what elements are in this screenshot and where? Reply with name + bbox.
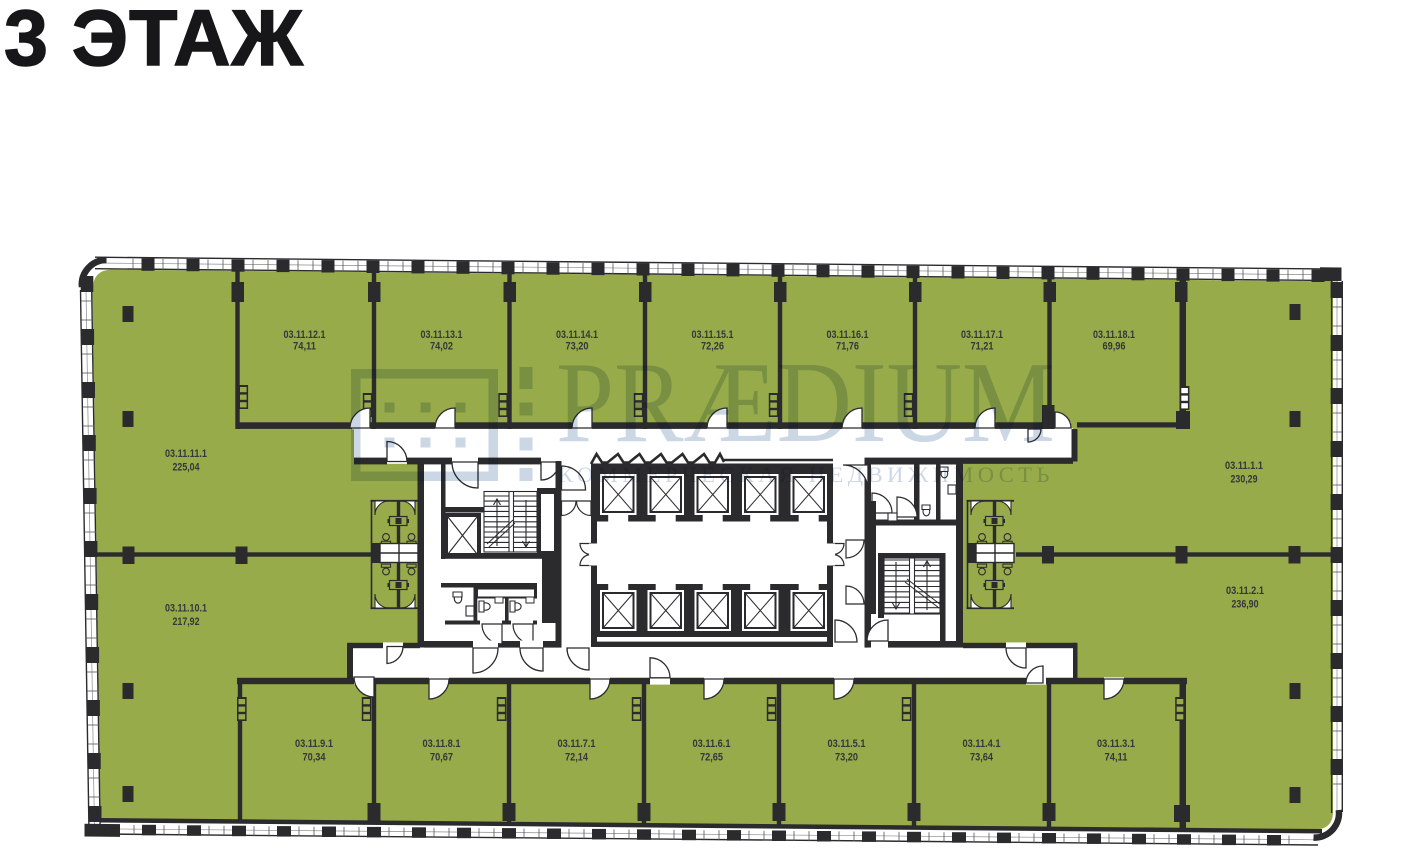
svg-text:236,90: 236,90 xyxy=(1232,599,1259,611)
svg-text:PRÆDIUM: PRÆDIUM xyxy=(556,338,1055,466)
svg-text:03.11.7.1: 03.11.7.1 xyxy=(558,738,596,750)
svg-text:74,11: 74,11 xyxy=(293,341,316,353)
svg-text:70,34: 70,34 xyxy=(303,752,326,764)
svg-text:72,14: 72,14 xyxy=(565,752,588,764)
svg-text:3 ЭТАЖ: 3 ЭТАЖ xyxy=(4,0,304,82)
svg-text:73,20: 73,20 xyxy=(835,752,858,764)
svg-text:03.11.10.1: 03.11.10.1 xyxy=(165,603,207,615)
svg-text:03.11.6.1: 03.11.6.1 xyxy=(693,738,731,750)
svg-text:03.11.4.1: 03.11.4.1 xyxy=(963,738,1001,750)
svg-text:230,29: 230,29 xyxy=(1231,474,1258,486)
svg-text:70,67: 70,67 xyxy=(430,752,453,764)
svg-text:74,02: 74,02 xyxy=(430,341,453,353)
svg-text:03.11.2.1: 03.11.2.1 xyxy=(1226,585,1264,597)
svg-text:03.11.13.1: 03.11.13.1 xyxy=(421,329,463,341)
svg-text:03.11.9.1: 03.11.9.1 xyxy=(295,738,333,750)
svg-text:72,65: 72,65 xyxy=(700,752,723,764)
svg-text:73,64: 73,64 xyxy=(970,752,993,764)
svg-text:225,04: 225,04 xyxy=(173,462,200,474)
svg-text:69,96: 69,96 xyxy=(1103,341,1126,353)
svg-text:03.11.1.1: 03.11.1.1 xyxy=(1225,460,1263,472)
svg-text:03.11.5.1: 03.11.5.1 xyxy=(828,738,866,750)
svg-text:КОММЕРЧЕСКАЯ НЕДВИЖИМОСТЬ: КОММЕРЧЕСКАЯ НЕДВИЖИМОСТЬ xyxy=(558,462,1054,487)
svg-text:03.11.3.1: 03.11.3.1 xyxy=(1097,738,1135,750)
svg-text:74,11: 74,11 xyxy=(1105,752,1128,764)
svg-text:03.11.8.1: 03.11.8.1 xyxy=(423,738,461,750)
svg-text:03.11.18.1: 03.11.18.1 xyxy=(1093,329,1135,341)
svg-text:03.11.11.1: 03.11.11.1 xyxy=(165,448,207,460)
svg-text:03.11.12.1: 03.11.12.1 xyxy=(284,329,326,341)
svg-text:217,92: 217,92 xyxy=(173,616,200,628)
